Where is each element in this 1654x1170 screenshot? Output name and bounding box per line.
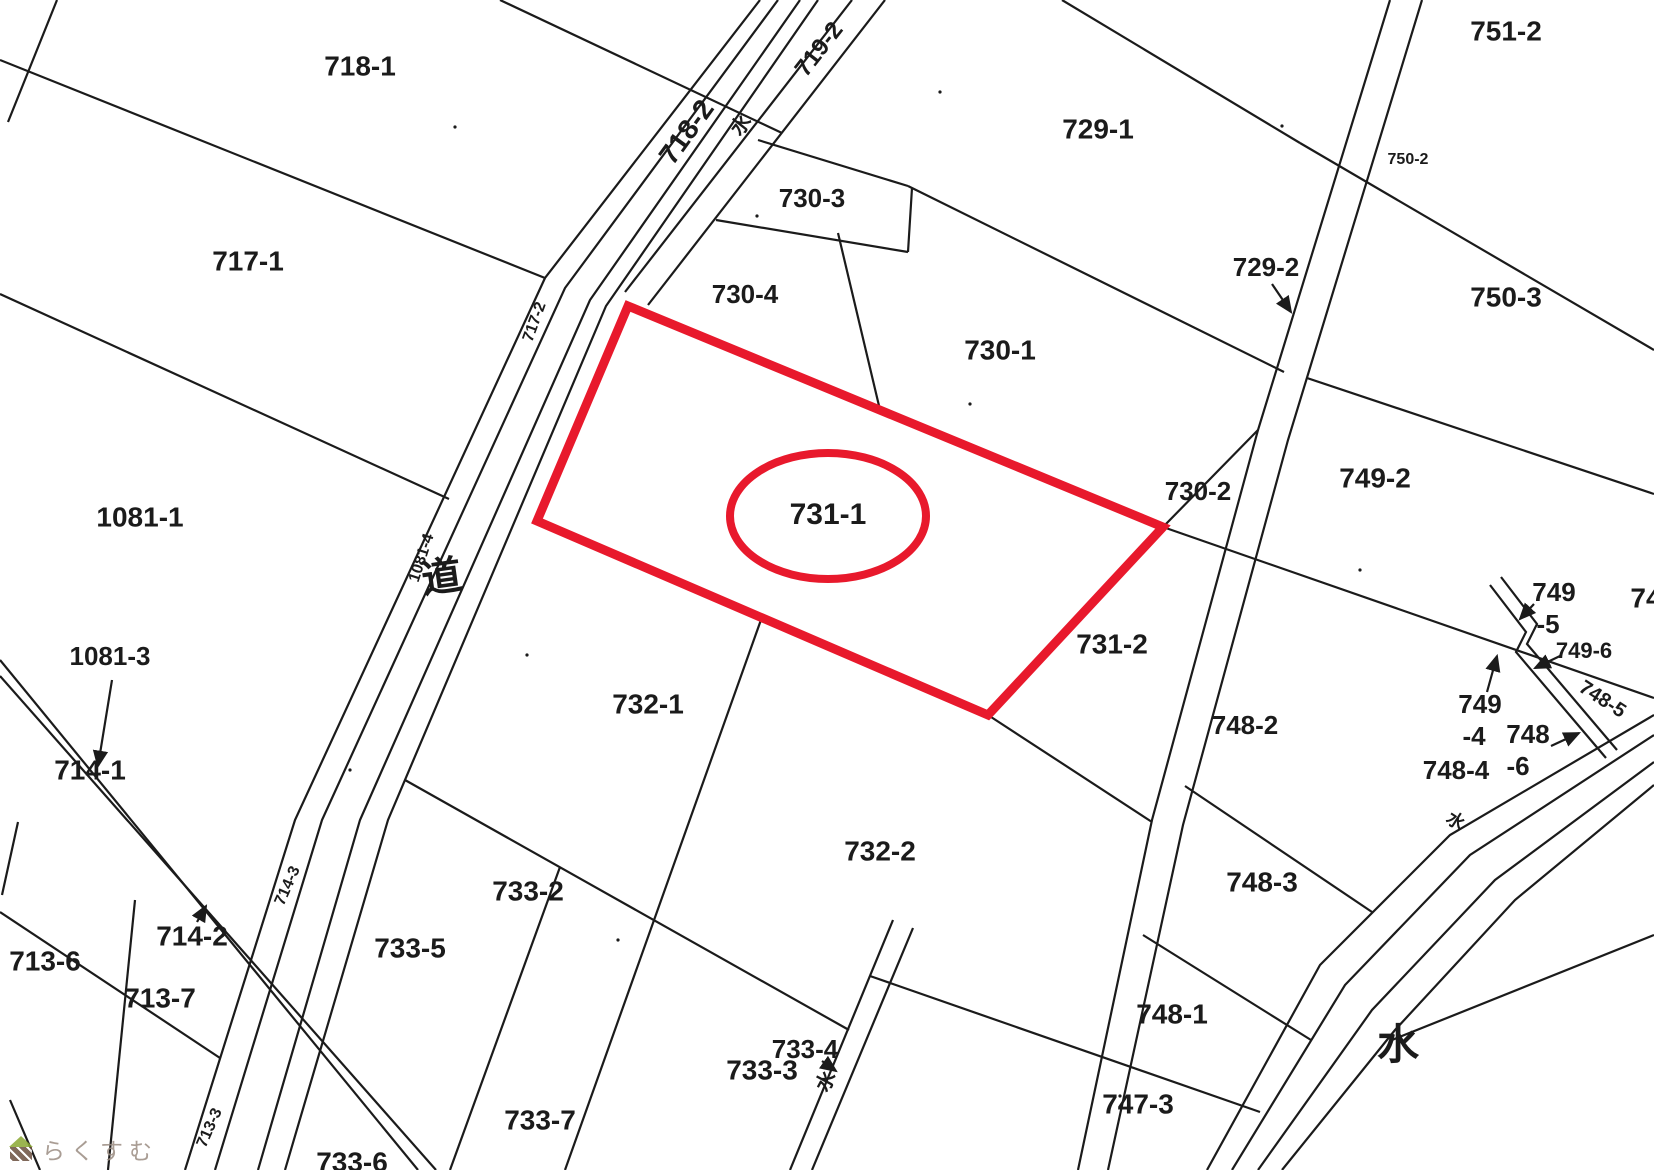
parcel-label-714-2: 714-2 xyxy=(156,920,228,951)
parcel-label-水: 水 xyxy=(1377,1021,1420,1068)
parcel-label-1081-1: 1081-1 xyxy=(96,501,183,532)
parcel-label-729-1: 729-1 xyxy=(1062,113,1134,144)
map-line-river-2 xyxy=(1232,735,1654,1170)
parcel-label-731-2: 731-2 xyxy=(1076,628,1148,659)
parcel-label-748-4: 748-4 xyxy=(1423,755,1490,785)
map-line-boundary xyxy=(0,294,449,499)
parcel-label-731-1: 731-1 xyxy=(790,498,867,531)
map-line-river-4 xyxy=(1282,785,1654,1170)
map-line-boundary xyxy=(1392,935,1654,1040)
map-line-boundary xyxy=(716,220,908,252)
parcel-label-733-4: 733-4 xyxy=(772,1034,839,1064)
survey-dot xyxy=(616,938,619,941)
map-line-road-west-1 xyxy=(185,0,760,1170)
map-line-road-east-2 xyxy=(285,0,818,1170)
parcel-label-748-3: 748-3 xyxy=(1226,866,1298,897)
survey-dot xyxy=(525,653,528,656)
parcel-label-水: 水 xyxy=(726,110,757,141)
parcel-label-732-1: 732-1 xyxy=(612,688,684,719)
parcel-label-74: 74 xyxy=(1630,582,1654,613)
map-line-boundary xyxy=(1300,143,1654,350)
parcel-label-747-3: 747-3 xyxy=(1102,1088,1174,1119)
map-line-boundary xyxy=(908,188,912,252)
parcel-label-730-3: 730-3 xyxy=(779,183,846,213)
map-line-corner-top-left xyxy=(8,0,57,122)
survey-dot xyxy=(1280,124,1283,127)
parcel-label-733-2: 733-2 xyxy=(492,875,564,906)
map-line-road-east-1 xyxy=(258,0,800,1170)
survey-dots xyxy=(348,90,1361,1097)
parcel-label-730-4: 730-4 xyxy=(712,279,779,309)
parcel-label-714-3: 714-3 xyxy=(272,864,304,908)
house-icon xyxy=(8,1136,34,1162)
site-watermark: らくすむ xyxy=(8,1132,158,1166)
survey-dot xyxy=(968,402,971,405)
cadastral-map: 718-1717-11081-11081-3714-1713-6714-2713… xyxy=(0,0,1654,1170)
map-line-boundary xyxy=(838,233,880,410)
parcel-label-733-6: 733-6 xyxy=(316,1146,388,1170)
survey-dot xyxy=(755,214,758,217)
parcel-label-749: 749 xyxy=(1532,577,1575,607)
pointer-arrow-1081-3 xyxy=(98,680,112,766)
map-line-boundary xyxy=(108,900,135,1170)
parcel-label-750-2: 750-2 xyxy=(1388,151,1429,168)
parcel-label-714-1: 714-1 xyxy=(54,754,126,785)
map-line-channel-right-2 xyxy=(1108,0,1422,1170)
parcel-label-733-5: 733-5 xyxy=(374,932,446,963)
parcel-label-749-6: 749-6 xyxy=(1556,638,1612,663)
survey-dot xyxy=(453,125,456,128)
parcel-label-748-2: 748-2 xyxy=(1212,710,1279,740)
parcel-label-749-2: 749-2 xyxy=(1339,462,1411,493)
parcel-label--4: -4 xyxy=(1462,721,1486,751)
parcel-label-748-5: 748-5 xyxy=(1575,676,1630,722)
pointer-arrow-748-6 xyxy=(1551,733,1579,746)
map-line-boundary xyxy=(405,780,849,1030)
parcel-label-730-2: 730-2 xyxy=(1165,476,1232,506)
parcel-label-733-7: 733-7 xyxy=(504,1104,576,1135)
parcel-label-729-2: 729-2 xyxy=(1233,252,1300,282)
pointer-arrow-729-2 xyxy=(1272,284,1291,312)
map-line-boundary xyxy=(758,140,908,186)
parcel-label-732-2: 732-2 xyxy=(844,835,916,866)
parcel-label-750-3: 750-3 xyxy=(1470,281,1542,312)
survey-dot xyxy=(938,90,941,93)
parcel-label-718-2: 718-2 xyxy=(653,94,720,170)
parcel-label-748-1: 748-1 xyxy=(1136,998,1208,1029)
parcel-label-730-1: 730-1 xyxy=(964,334,1036,365)
map-line-boundary xyxy=(988,715,1152,822)
parcel-label-749: 749 xyxy=(1458,689,1501,719)
parcel-boundary-lines xyxy=(0,0,1654,1170)
parcel-label-718-1: 718-1 xyxy=(324,50,396,81)
parcel-label--6: -6 xyxy=(1506,751,1529,781)
parcel-label-水: 水 xyxy=(811,1066,841,1095)
parcel-number-labels: 718-1717-11081-11081-3714-1713-6714-2713… xyxy=(9,15,1654,1170)
parcel-label-水: 水 xyxy=(1443,807,1470,835)
cadastral-map-canvas: 718-1717-11081-11081-3714-1713-6714-2713… xyxy=(0,0,1654,1170)
map-line-boundary xyxy=(2,822,18,895)
parcel-label-748: 748 xyxy=(1506,719,1549,749)
parcel-label-717-1: 717-1 xyxy=(212,245,284,276)
map-line-boundary xyxy=(870,976,1260,1112)
survey-dot xyxy=(1358,568,1361,571)
parcel-label--5: -5 xyxy=(1536,609,1559,639)
map-line-boundary xyxy=(1163,527,1654,698)
map-line-channel-right-1 xyxy=(1078,0,1390,1170)
parcel-label-751-2: 751-2 xyxy=(1470,15,1542,46)
survey-dot xyxy=(348,768,351,771)
parcel-label-1081-3: 1081-3 xyxy=(70,641,151,671)
parcel-label-713-7: 713-7 xyxy=(124,982,196,1013)
watermark-text: らくすむ xyxy=(42,1132,158,1166)
pointer-arrow-749-4 xyxy=(1487,656,1497,692)
parcel-label-713-6: 713-6 xyxy=(9,945,81,976)
